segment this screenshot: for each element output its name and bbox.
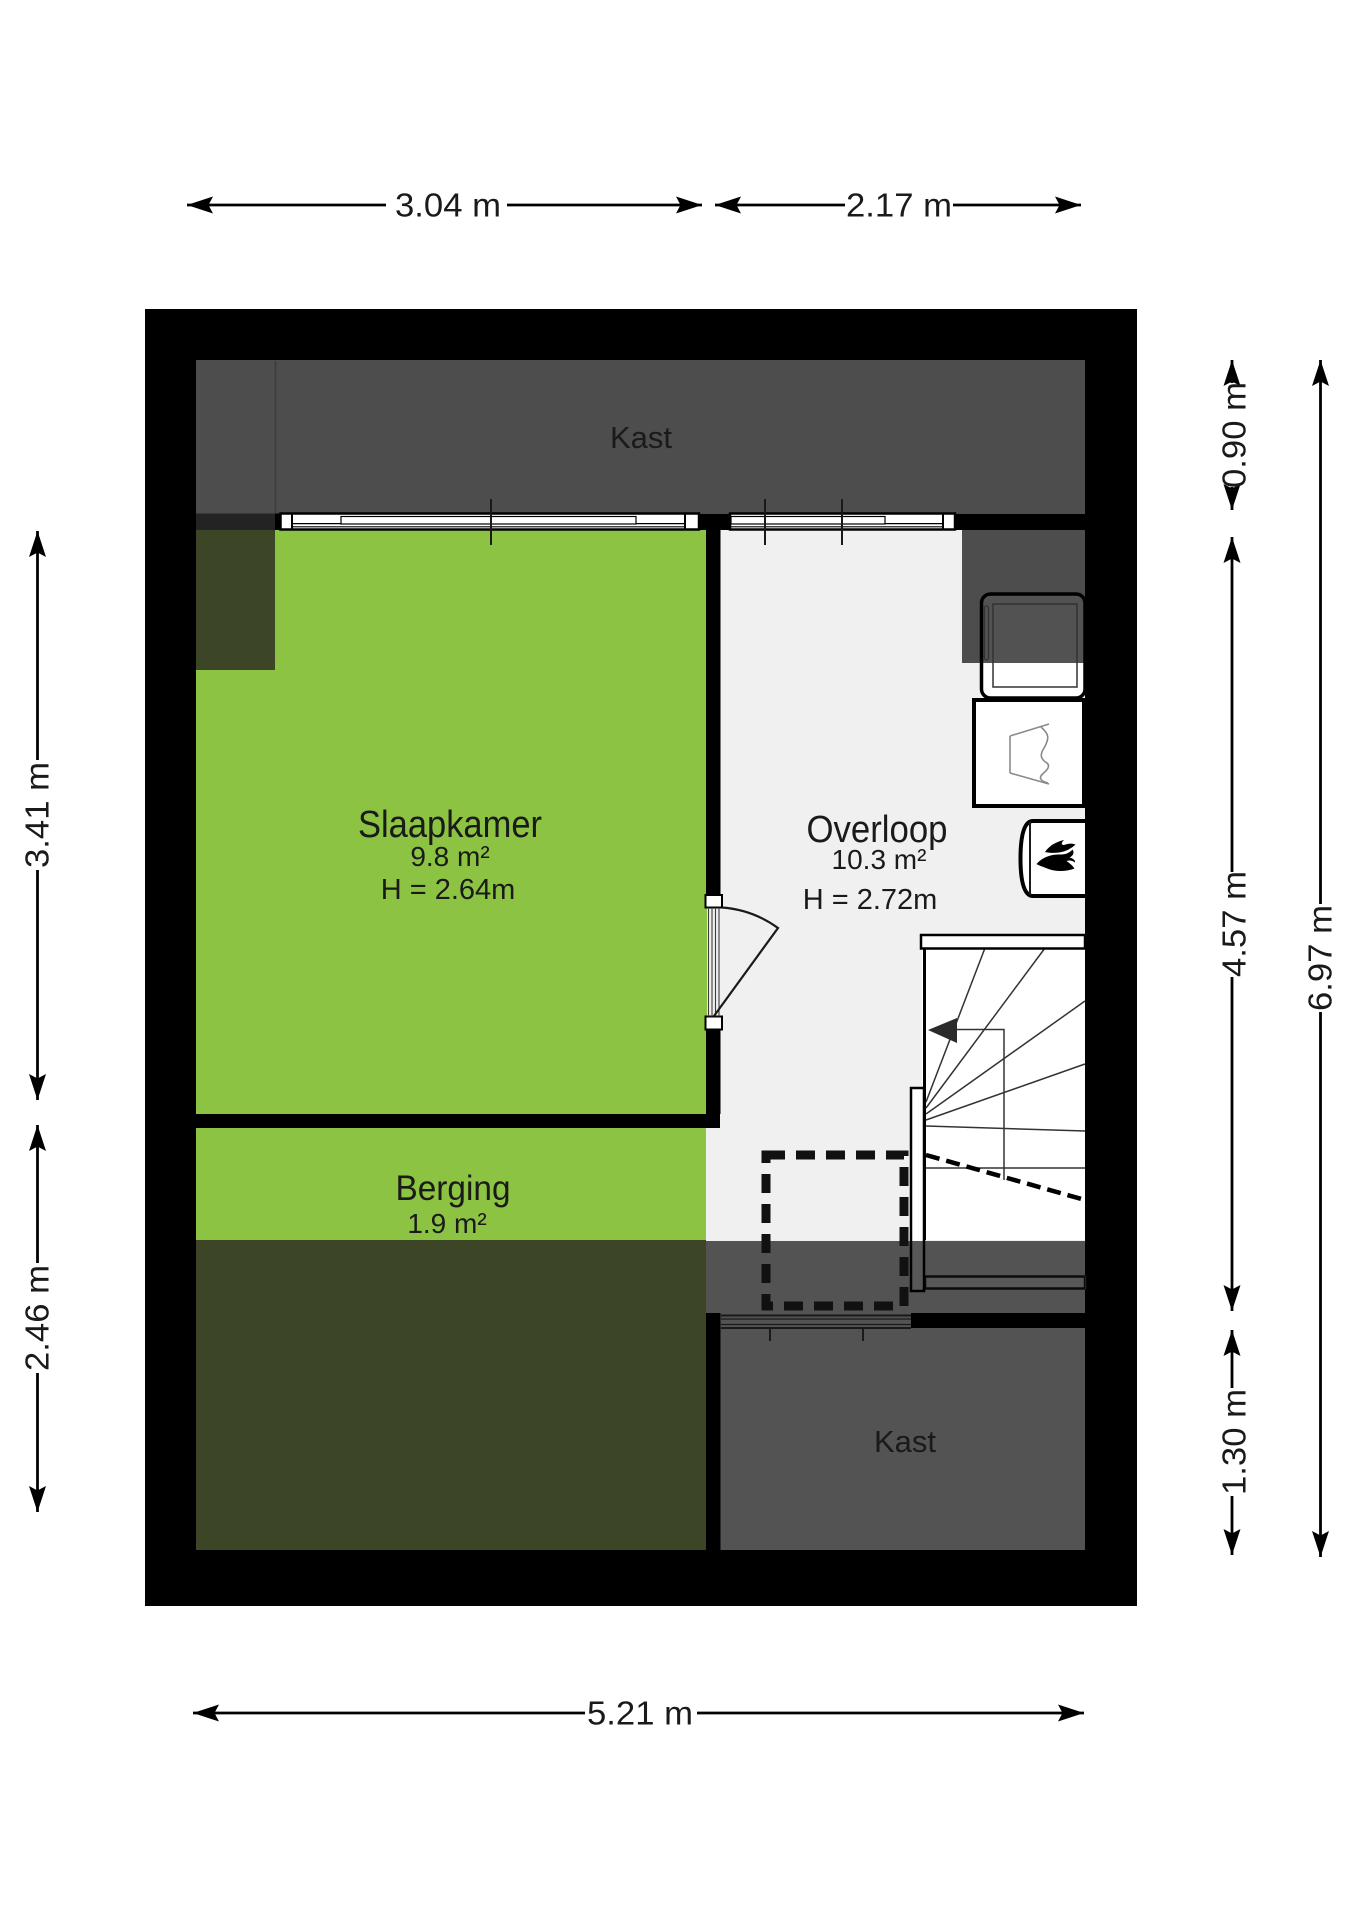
- svg-text:9.8 m²: 9.8 m²: [410, 841, 489, 872]
- svg-text:3.04 m: 3.04 m: [395, 187, 501, 224]
- svg-text:4.57 m: 4.57 m: [1216, 871, 1253, 977]
- svg-text:0.90 m: 0.90 m: [1216, 382, 1253, 488]
- svg-text:H = 2.72m: H = 2.72m: [803, 884, 938, 916]
- svg-text:Kast: Kast: [874, 1424, 936, 1459]
- svg-text:2.17 m: 2.17 m: [846, 187, 952, 224]
- svg-text:6.97 m: 6.97 m: [1302, 905, 1339, 1011]
- svg-text:1.9 m²: 1.9 m²: [407, 1208, 486, 1239]
- svg-text:2.46 m: 2.46 m: [19, 1265, 56, 1371]
- svg-text:H = 2.64m: H = 2.64m: [381, 874, 516, 906]
- svg-text:1.30 m: 1.30 m: [1216, 1389, 1253, 1495]
- svg-text:3.41 m: 3.41 m: [19, 762, 56, 868]
- svg-text:Berging: Berging: [396, 1169, 511, 1208]
- svg-text:5.21 m: 5.21 m: [587, 1695, 693, 1732]
- svg-text:Kast: Kast: [610, 420, 672, 455]
- svg-text:Slaapkamer: Slaapkamer: [358, 804, 542, 846]
- svg-text:10.3 m²: 10.3 m²: [832, 844, 927, 875]
